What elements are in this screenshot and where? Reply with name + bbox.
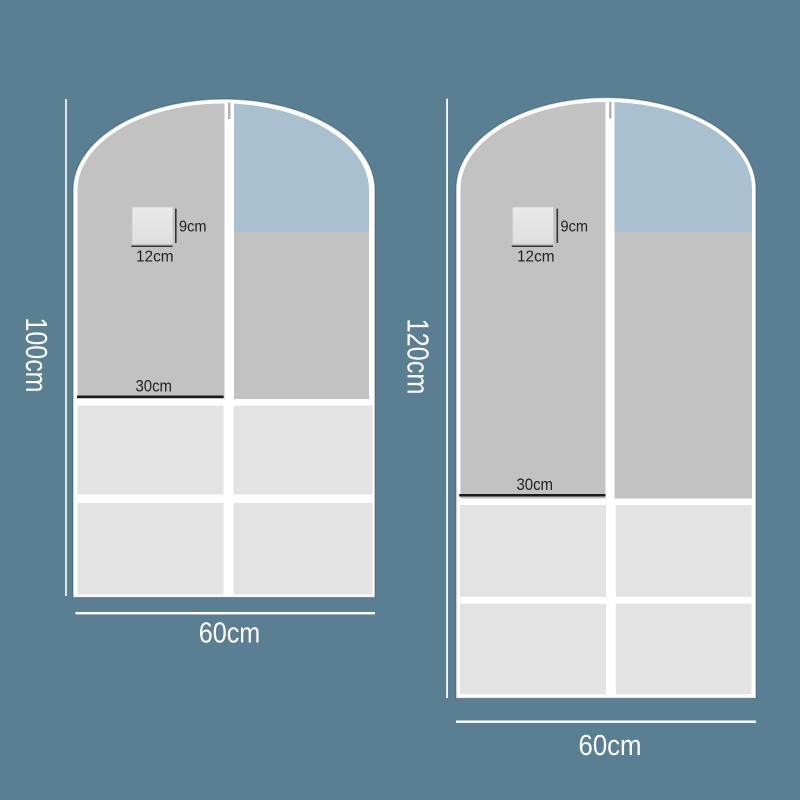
svg-text:60cm: 60cm	[579, 730, 642, 762]
svg-text:100cm: 100cm	[19, 318, 54, 393]
svg-text:12cm: 12cm	[136, 248, 174, 265]
svg-text:9cm: 9cm	[179, 218, 207, 235]
svg-text:60cm: 60cm	[199, 618, 261, 650]
svg-text:120cm: 120cm	[401, 319, 436, 395]
svg-text:30cm: 30cm	[517, 476, 554, 494]
svg-text:9cm: 9cm	[561, 218, 589, 235]
svg-text:12cm: 12cm	[517, 248, 555, 265]
svg-text:30cm: 30cm	[136, 378, 173, 396]
